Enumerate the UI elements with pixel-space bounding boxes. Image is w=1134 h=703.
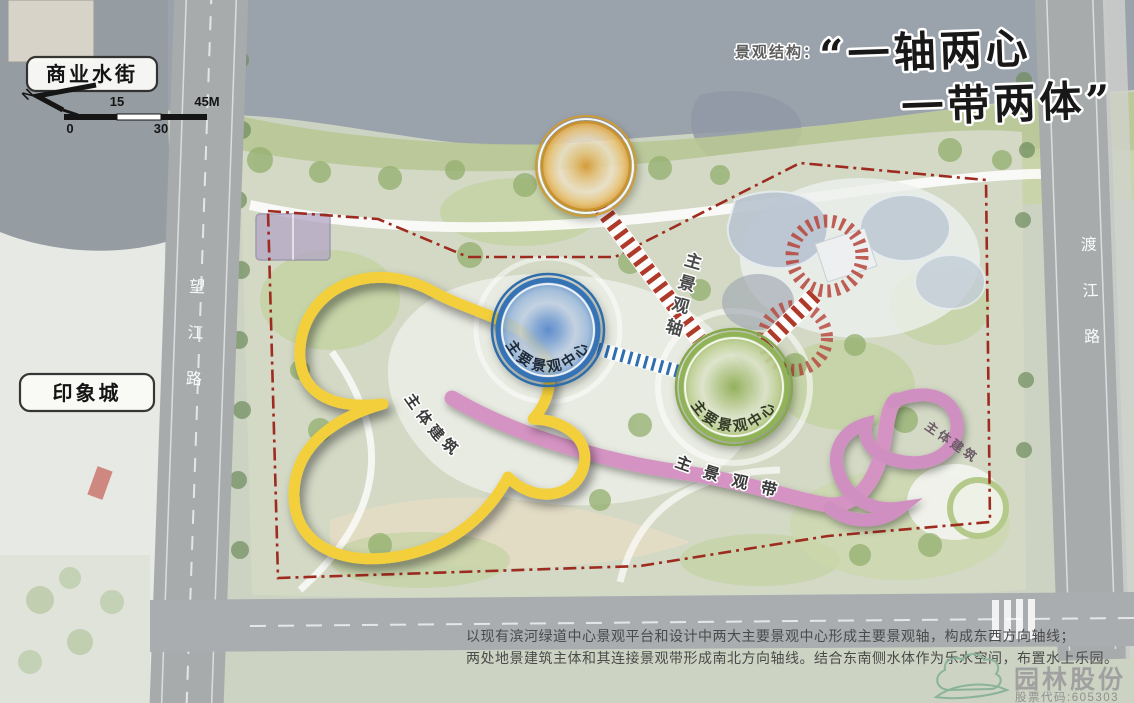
title-line2: 一带两体” — [901, 76, 1115, 132]
stock-code: 股票代码:605303 — [1015, 691, 1119, 703]
water-feature-ring — [950, 480, 1006, 536]
description-line2: 两处地景建筑主体和其连接景观带形成南北方向轴线。结合东南侧水体作为乐水空间，布置… — [466, 650, 1119, 666]
scale-tick-0: 0 — [66, 121, 73, 136]
scale-tick-45: 45M — [194, 94, 219, 109]
building-footprint — [860, 195, 950, 261]
scale-tick-15: 15 — [110, 94, 124, 109]
building-footprint — [8, 0, 94, 62]
scale-tick-30: 30 — [154, 121, 168, 136]
impression-city-label: 印象城 — [53, 381, 122, 405]
impression-city-tag: 印象城 — [20, 374, 154, 411]
node-orange — [536, 116, 636, 216]
plan-canvas: 望江路 渡江路 主景观带 主体建筑 主体建筑 主景观轴 — [0, 0, 1134, 703]
business-street-label: 商业水街 — [46, 62, 138, 86]
title-line1: “一轴两心 — [819, 24, 1033, 80]
landscape-structure-plan: 望江路 渡江路 主景观带 主体建筑 主体建筑 主景观轴 — [0, 0, 1134, 703]
title-prefix: 景观结构： — [735, 43, 820, 61]
description-line1: 以现有滨河绿道中心景观平台和设计中两大主要景观中心形成主要景观轴，构成东西方向轴… — [466, 628, 1075, 645]
building-footprint — [915, 255, 985, 309]
company-name: 园林股份 — [1014, 666, 1126, 694]
